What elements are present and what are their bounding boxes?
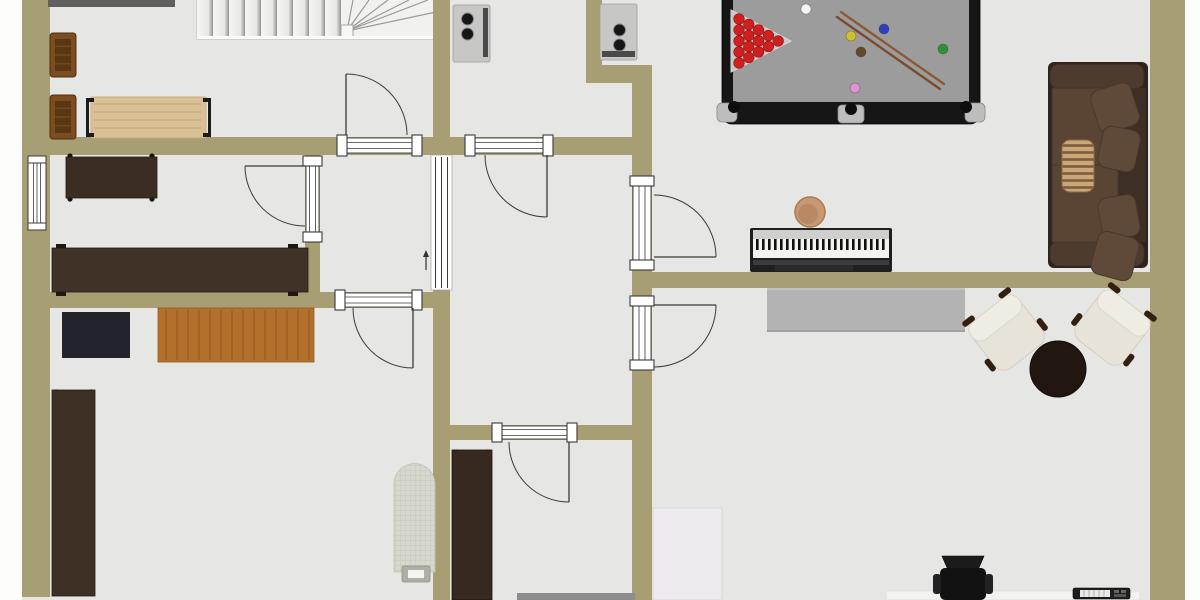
sill <box>28 156 46 163</box>
jamb <box>412 135 422 156</box>
clamp-nub <box>86 133 94 137</box>
device-keys <box>1080 590 1110 597</box>
washer-2[interactable] <box>600 4 637 60</box>
control-bar <box>753 260 889 265</box>
red-ball <box>734 36 745 47</box>
washer-panel <box>602 51 635 57</box>
surface <box>52 390 95 596</box>
music-rest <box>753 230 889 239</box>
stairs-edge <box>197 36 437 39</box>
door-top-left-room[interactable] <box>337 135 422 156</box>
wood-armchair-2[interactable] <box>50 95 76 139</box>
clamp-bar <box>208 98 211 137</box>
sofa-armrest <box>1050 64 1144 89</box>
sliding-door-hallway[interactable] <box>431 155 452 290</box>
white-board[interactable] <box>653 508 722 600</box>
device-btn <box>1114 590 1119 593</box>
wood-armchair-1[interactable] <box>50 33 76 77</box>
black-key <box>810 239 813 250</box>
wall-8 <box>586 65 652 83</box>
jamb <box>630 260 654 270</box>
pocket <box>960 101 972 113</box>
gray-sideboard[interactable] <box>767 288 965 332</box>
board-handle-grip <box>408 570 424 578</box>
black-key <box>756 239 759 250</box>
threshold <box>465 138 553 153</box>
blue-ball <box>879 24 889 34</box>
door-left-middle-room[interactable] <box>303 156 322 242</box>
surface <box>517 593 635 600</box>
jamb <box>630 360 654 370</box>
wall-4 <box>433 290 450 600</box>
craft-table[interactable] <box>86 97 211 138</box>
white-keys <box>753 239 889 258</box>
threshold <box>492 426 577 439</box>
washer-panel <box>483 8 488 57</box>
jamb <box>303 156 322 166</box>
wall-ledge <box>48 0 175 7</box>
long-sideboard-desk[interactable] <box>52 244 308 296</box>
black-key <box>870 239 873 250</box>
device-btn <box>1114 594 1126 597</box>
black-key <box>822 239 825 250</box>
pink-ball <box>850 83 860 93</box>
pedal-box <box>775 265 853 271</box>
red-ball <box>763 30 774 41</box>
tall-desk[interactable] <box>52 389 95 596</box>
black-key <box>780 239 783 250</box>
digital-piano[interactable] <box>750 228 892 272</box>
stairs-winder-area <box>343 0 437 36</box>
window-left-wall[interactable] <box>28 156 46 230</box>
threshold <box>335 293 422 307</box>
wall-3 <box>433 0 450 137</box>
jamb <box>303 232 322 242</box>
surface <box>653 508 722 600</box>
red-ball <box>734 47 745 58</box>
chair-headrest <box>942 556 984 570</box>
black-key <box>882 239 885 250</box>
yellow-ball <box>846 31 856 41</box>
surface <box>452 450 492 600</box>
washer-knob <box>462 13 474 25</box>
pool-table[interactable] <box>717 0 985 124</box>
red-ball <box>744 30 755 41</box>
washer-knob <box>462 28 474 40</box>
sill <box>28 223 46 230</box>
surface <box>52 248 308 292</box>
black-key <box>834 239 837 250</box>
threshold <box>337 138 422 153</box>
piano-stool[interactable] <box>795 197 825 227</box>
stairs-pivot-node <box>341 25 353 37</box>
stairs-treads <box>197 0 343 36</box>
mini-keyboard[interactable] <box>1073 588 1130 599</box>
jamb <box>630 176 654 186</box>
wall-10 <box>640 272 1150 288</box>
pocket <box>728 101 740 113</box>
threshold <box>633 296 651 370</box>
clamp-nub <box>86 98 94 102</box>
clamp-bar <box>86 98 89 137</box>
gray-desk[interactable] <box>517 593 635 600</box>
red-ball <box>773 36 784 47</box>
jamb <box>465 135 475 156</box>
chair-armrest <box>933 574 941 594</box>
board-top <box>394 463 435 572</box>
black-key <box>828 239 831 250</box>
surface <box>62 312 130 358</box>
red-ball <box>734 25 745 36</box>
cue-ball <box>801 4 811 14</box>
jamb <box>567 423 577 442</box>
floorplan-svg <box>0 0 1200 600</box>
jamb <box>492 423 502 442</box>
surface <box>66 157 157 198</box>
red-ball <box>763 41 774 52</box>
red-ball <box>753 47 764 58</box>
staircase[interactable] <box>197 0 437 39</box>
door-games-room[interactable] <box>630 176 654 270</box>
threshold <box>633 176 651 270</box>
jamb <box>630 296 654 306</box>
black-key <box>846 239 849 250</box>
black-key <box>864 239 867 250</box>
jamb <box>337 135 347 156</box>
walnut-table[interactable] <box>66 153 157 201</box>
coffee-table[interactable] <box>1030 341 1086 397</box>
brown-ball <box>856 47 866 57</box>
table-top <box>91 97 206 138</box>
oak-desk[interactable] <box>158 308 314 362</box>
surface <box>158 308 314 362</box>
red-ball <box>753 25 764 36</box>
black-key <box>852 239 855 250</box>
red-ball <box>734 58 745 69</box>
threshold <box>306 156 319 242</box>
red-ball <box>753 36 764 47</box>
black-key <box>858 239 861 250</box>
chair-seat <box>940 568 986 600</box>
wall-1 <box>1150 0 1185 600</box>
chair-armrest <box>985 574 993 594</box>
black-key <box>774 239 777 250</box>
pillow <box>1096 125 1142 174</box>
black-key <box>816 239 819 250</box>
door-bottom-middle-room[interactable] <box>492 423 577 442</box>
black-key <box>840 239 843 250</box>
black-key <box>786 239 789 250</box>
floorplan-canvas <box>0 0 1200 600</box>
black-key <box>804 239 807 250</box>
black-key <box>876 239 879 250</box>
jamb <box>335 290 345 310</box>
jamb <box>412 290 422 310</box>
dark-rug[interactable] <box>62 312 130 358</box>
jamb <box>543 135 553 156</box>
ironing-board[interactable] <box>394 463 435 582</box>
sofa[interactable] <box>1048 62 1148 283</box>
clamp-nub <box>203 133 211 137</box>
laundry-cabinet[interactable] <box>452 449 492 600</box>
red-ball <box>744 19 755 30</box>
washer-knob <box>614 39 626 51</box>
black-key <box>768 239 771 250</box>
device-btn <box>1121 590 1126 593</box>
door-lounge-room[interactable] <box>630 296 654 370</box>
black-key <box>762 239 765 250</box>
striped-pillow <box>1062 140 1094 192</box>
clamp-nub <box>203 98 211 102</box>
green-ball <box>938 44 948 54</box>
door-bottom-left-room[interactable] <box>335 290 422 310</box>
red-ball <box>734 14 745 25</box>
black-key <box>798 239 801 250</box>
surface <box>48 0 175 7</box>
sideboard-top <box>767 288 965 332</box>
red-ball <box>744 41 755 52</box>
pocket <box>845 103 857 115</box>
washer-knob <box>614 24 626 36</box>
stool-shade <box>798 204 818 224</box>
red-ball <box>744 52 755 63</box>
black-key <box>792 239 795 250</box>
washer-1[interactable] <box>453 5 490 62</box>
door-laundry[interactable] <box>465 135 553 156</box>
